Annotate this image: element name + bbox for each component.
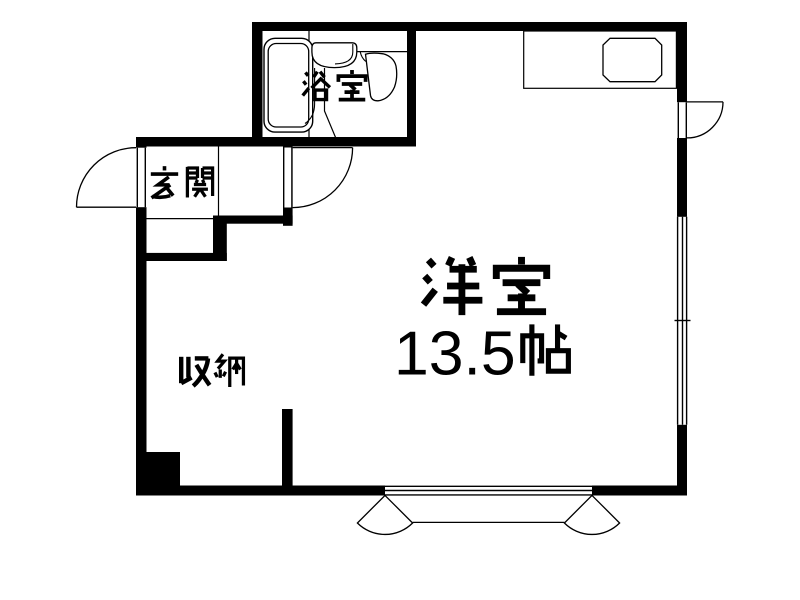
svg-text:13.5: 13.5 [394,319,516,389]
